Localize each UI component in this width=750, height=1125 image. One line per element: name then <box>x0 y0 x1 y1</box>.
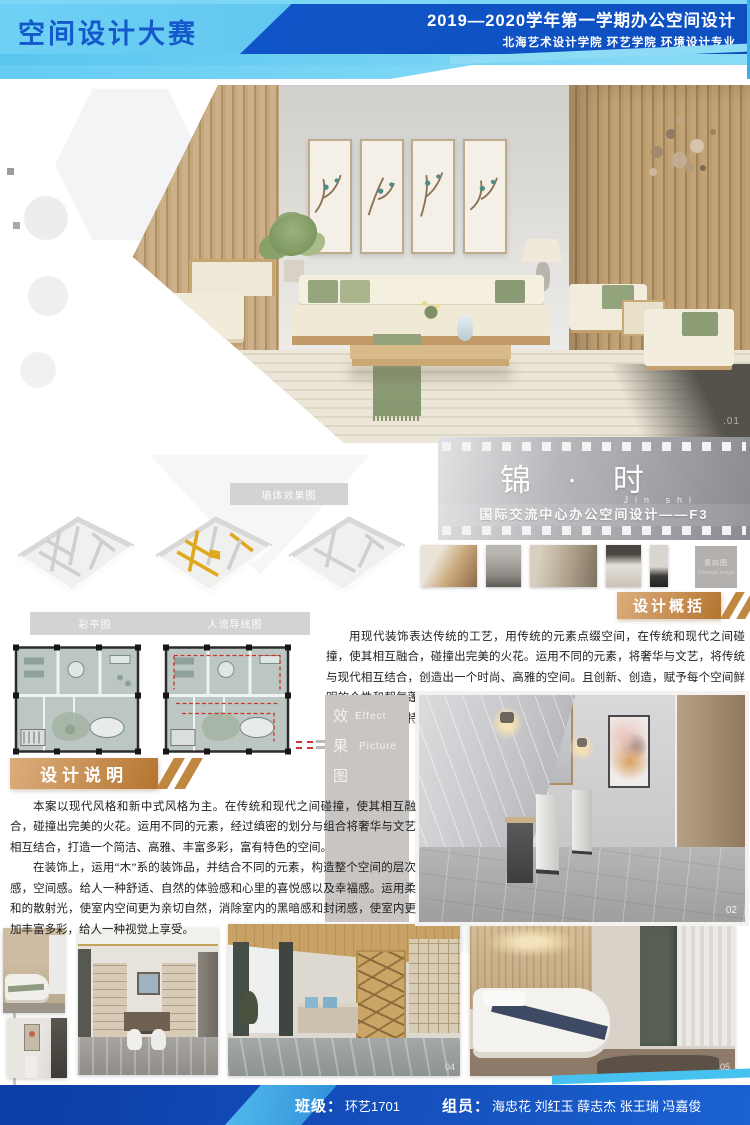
axon-diagram-1 <box>12 506 140 600</box>
description-body: 本案以现代风格和新中式风格为主。在传统和现代之间碰撞，使其相互融合，碰撞出完美的… <box>10 797 416 940</box>
cushion <box>308 280 338 303</box>
concept-image-label-box: 意向图 Concept Image <box>695 546 737 588</box>
concept-thumbnail <box>650 545 668 587</box>
header-top-line <box>0 0 750 4</box>
color-floor-plan <box>12 643 142 756</box>
washroom-plinth <box>507 822 533 883</box>
effect-char-3: 图 <box>333 765 348 786</box>
description-paragraph-2: 在装饰上，运用“木”系的装饰品，并结合不同的元素，构造整个空间的层次感，空间感。… <box>10 858 416 940</box>
hero-dark-floor-corner <box>557 364 750 443</box>
art-frame <box>137 972 161 995</box>
curtain <box>640 924 677 1046</box>
pedestal-sink <box>572 790 592 853</box>
axon-diagram-2-highlighted <box>150 506 278 600</box>
sheer-curtain <box>677 924 735 1046</box>
wood-door <box>198 952 218 1043</box>
effect-word-2: Picture <box>359 741 397 752</box>
axon-label-bar: 墙体效果图 <box>230 483 348 505</box>
monitor <box>323 997 337 1008</box>
workstation-desk <box>298 1003 358 1033</box>
effect-char-2: 果 <box>333 735 348 756</box>
gallery-photo-bedroom-small <box>3 928 65 1013</box>
wall-frame-4 <box>463 139 507 254</box>
project-title: 锦 · 时 <box>438 455 720 500</box>
flower-arrangement <box>415 296 447 321</box>
gallery-photo-study <box>78 928 218 1075</box>
hero-render-living-room: .01 <box>105 85 750 443</box>
desk <box>124 1012 170 1031</box>
class-value: 环艺1701 <box>345 1096 400 1115</box>
header-right-block: 2019—2020学年第一学期办公空间设计 北海艺术设计学院 环艺学院 环境设计… <box>427 7 736 50</box>
cushion <box>124 294 154 317</box>
team-label: 组员： <box>442 1095 490 1116</box>
axon-diagram-3 <box>283 506 411 600</box>
concept-thumbnail <box>421 545 477 587</box>
cove-light-glow <box>486 927 576 957</box>
plant <box>240 991 259 1024</box>
overview-heading-box: 设计概括 <box>617 592 721 619</box>
sofa-wood-base <box>292 336 550 345</box>
plan-label-right: 人流导线图 <box>160 616 310 631</box>
competition-title: 空间设计大赛 <box>18 12 198 51</box>
overview-heading: 设计概括 <box>617 592 750 619</box>
floor <box>78 1037 218 1075</box>
film-perforations-bottom <box>442 526 746 535</box>
course-title: 2019—2020学年第一学期办公空间设计 <box>427 7 736 31</box>
photo-number: 05 <box>720 1062 730 1072</box>
concept-label-en: Concept Image <box>697 570 734 576</box>
circulation-floor-plan <box>162 643 292 756</box>
dark-panel <box>51 1018 67 1078</box>
ceramic-vase <box>457 314 474 341</box>
grid-shelf <box>409 939 460 1033</box>
cushion <box>682 312 717 335</box>
chair <box>127 1029 142 1050</box>
footer-credits: 班级： 环艺1701 组员： 海忠花 刘红玉 薛志杰 张王瑞 冯嘉俊 <box>295 1085 701 1125</box>
gallery-photo-bedroom-large: 05 <box>470 924 735 1076</box>
wall-lamp <box>569 734 595 761</box>
concept-label-cn: 意向图 <box>704 558 728 568</box>
wall-lamp <box>491 706 524 740</box>
cushion <box>495 280 525 303</box>
decor-circle <box>28 276 68 316</box>
header-band-diagonal <box>0 65 750 79</box>
cushion <box>340 280 370 303</box>
table-lamp-shade <box>521 239 563 262</box>
project-subtitle: 国际交流中心办公空间设计——F3 <box>438 504 750 523</box>
decor-circle <box>20 352 56 388</box>
gallery-photo-open-office: 04 <box>228 924 460 1076</box>
coffee-table <box>350 345 511 359</box>
effect-char-1: 效 <box>333 705 348 726</box>
class-label: 班级： <box>295 1095 343 1116</box>
plan-label-bar: 彩平图 人流导线图 <box>30 612 310 635</box>
decor-square <box>13 222 20 229</box>
decor-circle <box>24 196 68 240</box>
art-frame <box>24 1024 40 1051</box>
decor-square <box>7 168 14 175</box>
metal-wall-art <box>627 106 724 206</box>
left-sofa <box>115 293 244 343</box>
effect-render-washroom: 02 <box>419 695 745 922</box>
concept-thumbnail <box>486 545 521 587</box>
photo-number: .01 <box>723 416 740 427</box>
concept-thumbnail <box>530 545 597 587</box>
legend-red-dash-icon <box>296 747 313 749</box>
film-strip-title-band: 锦 · 时 Jin shi 国际交流中心办公空间设计——F3 <box>438 437 750 540</box>
plan-label-left: 彩平图 <box>30 616 160 631</box>
art-accent <box>29 1031 35 1037</box>
footer-banner: 班级： 环艺1701 组员： 海忠花 刘红玉 薛志杰 张王瑞 冯嘉俊 <box>0 1085 750 1125</box>
chair <box>151 1029 166 1050</box>
description-paragraph-1: 本案以现代风格和新中式风格为主。在传统和现代之间碰撞，使其相互融合，碰撞出完美的… <box>10 797 416 858</box>
team-value: 海忠花 刘红玉 薛志杰 张王瑞 冯嘉俊 <box>492 1096 701 1115</box>
description-heading-box: 设计说明 <box>10 758 158 789</box>
effect-word-1: Effect <box>355 711 386 722</box>
floor <box>3 1003 65 1013</box>
header-banner: 空间设计大赛 2019—2020学年第一学期办公空间设计 北海艺术设计学院 环艺… <box>0 0 750 54</box>
curtain <box>78 949 91 1043</box>
pedestal-sink <box>536 794 559 871</box>
washroom-tile-floor <box>419 847 745 922</box>
curtain <box>279 942 293 1036</box>
poster-page: 空间设计大赛 2019—2020学年第一学期办公空间设计 北海艺术设计学院 环艺… <box>0 0 750 1125</box>
gallery-photo-corridor-small <box>7 1018 67 1078</box>
pillow <box>483 991 525 1006</box>
wall-frame-2 <box>360 139 404 254</box>
wall-frame-3 <box>411 139 455 254</box>
console-table <box>189 259 276 296</box>
pedestal <box>25 1056 37 1078</box>
axon-label: 墙体效果图 <box>262 487 317 502</box>
description-heading: 设计说明 <box>10 758 194 789</box>
film-perforations-top <box>442 442 746 451</box>
monitor <box>305 997 319 1008</box>
photo-number: 02 <box>726 905 737 916</box>
window <box>49 935 65 995</box>
washroom-art-frame <box>608 715 649 787</box>
concept-thumbnail <box>606 545 641 587</box>
legend-red-dash-icon <box>296 741 313 743</box>
floor <box>228 1038 460 1076</box>
photo-number: 04 <box>445 1062 455 1072</box>
display-shelf <box>93 963 127 1037</box>
concept-thumbnail-row <box>421 545 668 587</box>
